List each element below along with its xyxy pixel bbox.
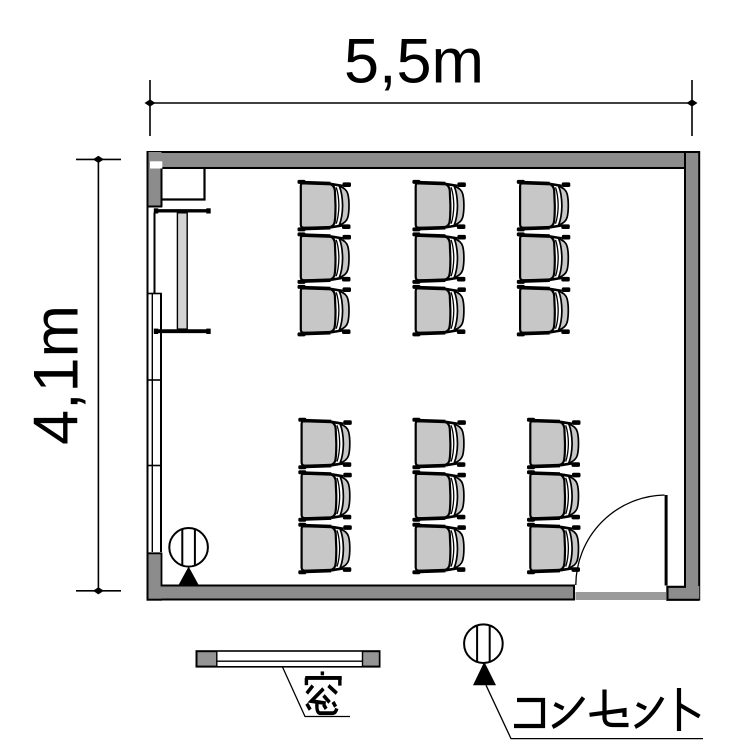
svg-text:4,1m: 4,1m	[22, 305, 92, 445]
svg-text:5,5m: 5,5m	[344, 27, 484, 97]
